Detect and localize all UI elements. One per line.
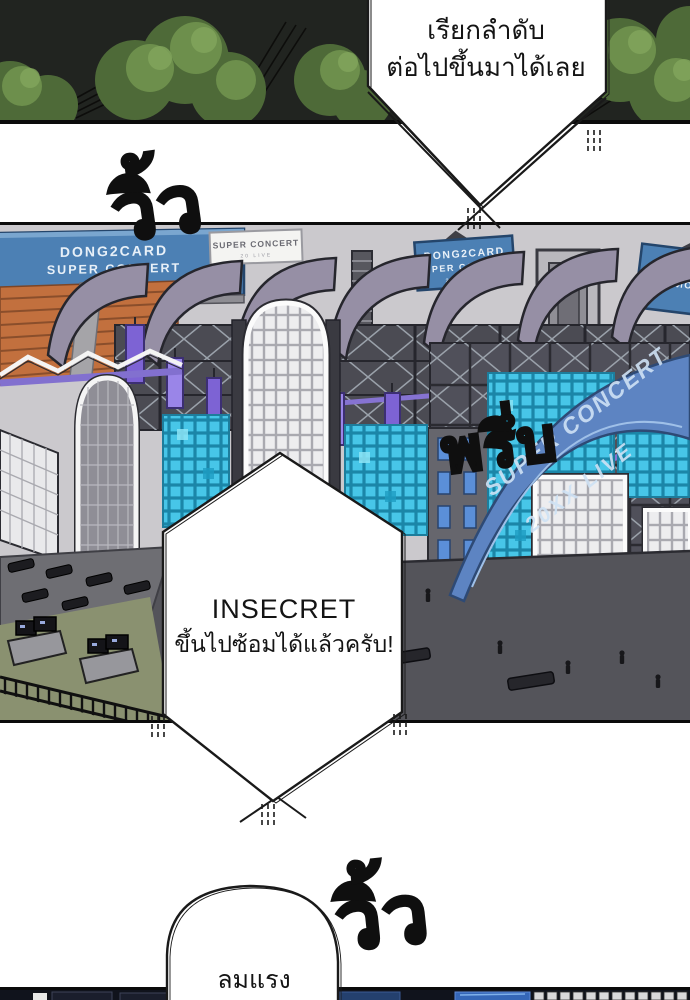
banner-white: SUPER CONCERT 20 LIVE — [210, 229, 303, 264]
blue-screen — [455, 992, 530, 1000]
bottom-strip-scene — [0, 990, 690, 1000]
insecret-line1: INSECRET — [162, 592, 406, 626]
dim-screen — [340, 992, 400, 1000]
wind-line1: ลมแรง — [178, 960, 330, 1000]
caller-line1: เรียกลำดับ — [372, 12, 600, 49]
sfx-whoosh-top: วิ้ว — [104, 140, 212, 276]
caller-dialogue: เรียกลำดับ ต่อไปขึ้นมาได้เลย — [372, 12, 600, 86]
comic-page: DONG2CARD SUPER CONCERT 20 LIVE SUPER CO… — [0, 0, 690, 1000]
wind-dialogue: ลมแรง — [178, 960, 330, 1000]
arch-screen-left — [78, 378, 136, 559]
sfx-whoosh-bottom: วิ้ว — [330, 849, 437, 985]
banner-white-line2: 20 LIVE — [240, 252, 272, 259]
bottom-strip-panel — [0, 987, 690, 1000]
small-screen-light — [33, 993, 47, 1000]
insecret-line2: ขึ้นไปซ้อมได้แล้วครับ! — [162, 626, 406, 662]
insecret-dialogue: INSECRET ขึ้นไปซ้อมได้แล้วครับ! — [162, 592, 406, 662]
sfx-rumble: พรึ่บ — [437, 391, 564, 499]
caller-line2: ต่อไปขึ้นมาได้เลย — [372, 49, 600, 86]
